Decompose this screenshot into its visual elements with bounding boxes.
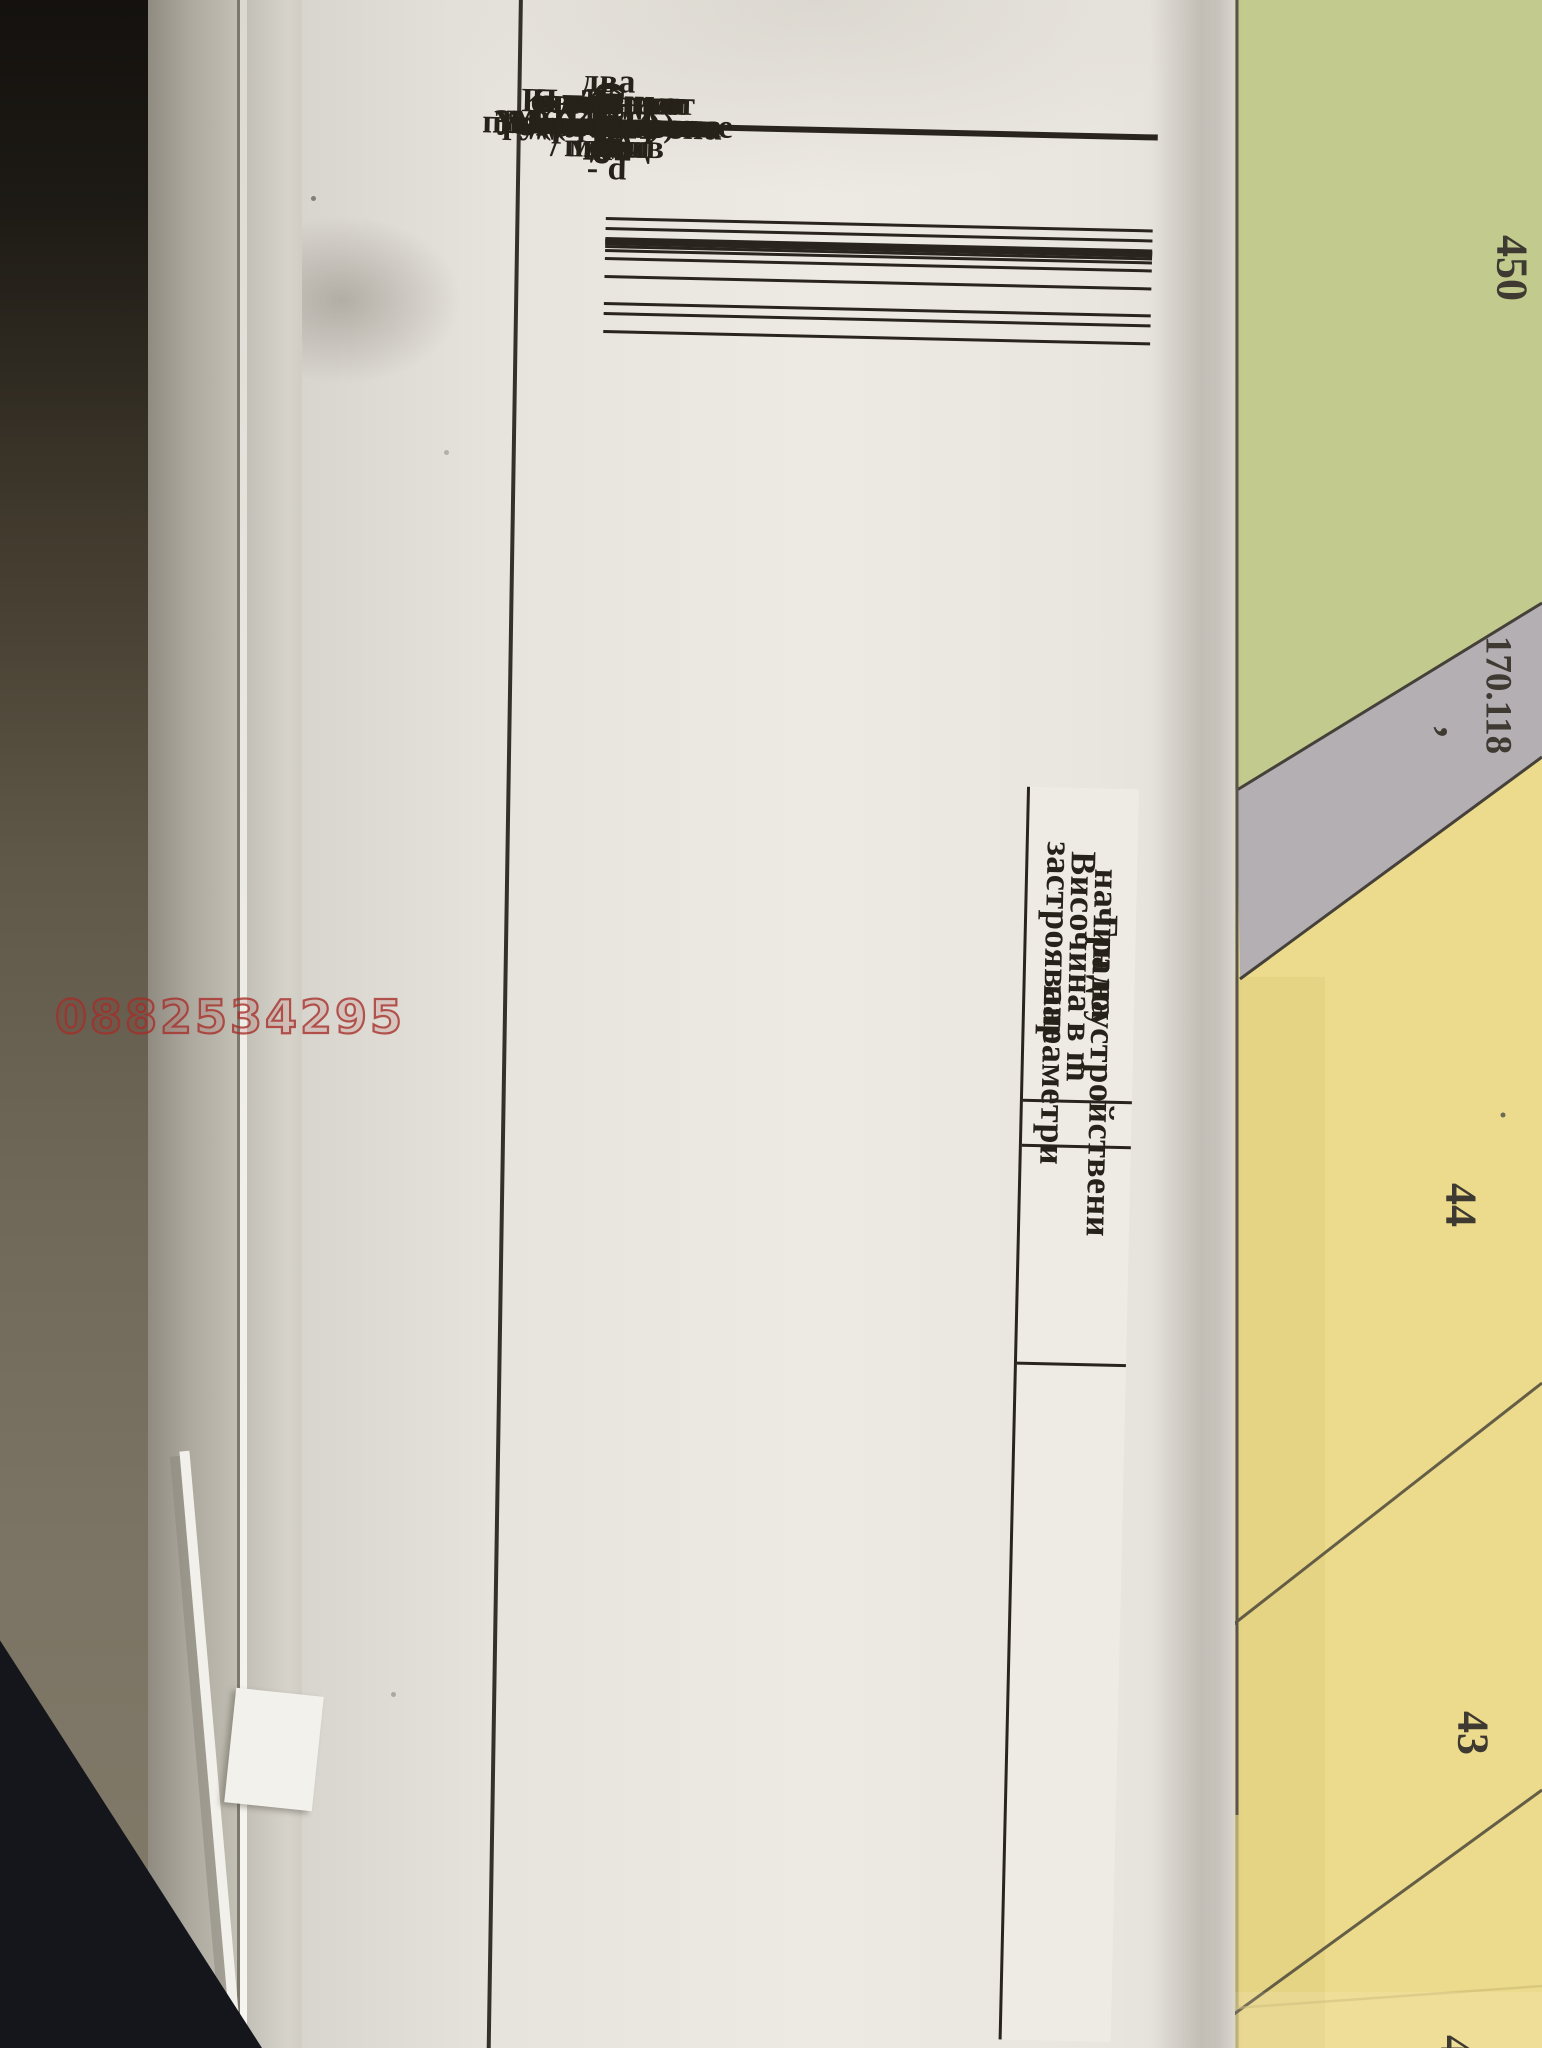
road-tick-mark: ,	[1430, 727, 1481, 738]
group-line: застрояване	[1036, 842, 1081, 1046]
zoning-map: 450 170.118 , 44 43 4	[1235, 0, 1542, 2048]
parcel-partial-label: 4	[1431, 2035, 1482, 2048]
photographed-document: 450 170.118 , 44 43 4 квартал / масив УП…	[0, 0, 1542, 2048]
parcel-44-label: 44	[1436, 1183, 1487, 1227]
paper-sheet-corner	[224, 1688, 324, 1812]
dust-speck	[311, 196, 316, 201]
building-mode-group-label: начин назастрояване	[1031, 841, 1131, 1046]
road-id-label: 170.118	[1477, 636, 1520, 754]
building-mode-group-cell: начин назастрояване	[1023, 787, 1139, 1104]
group-line: начин на	[1084, 869, 1127, 1021]
parcel-43-label: 43	[1448, 1711, 1499, 1755]
paper-fold-shading	[1150, 0, 1242, 2048]
phone-watermark: 0882534295	[55, 990, 405, 1044]
table-row-clipped	[605, 125, 1155, 255]
dust-speck	[444, 450, 449, 455]
parcel-450-label: 450	[1487, 235, 1538, 301]
dust-speck	[391, 1692, 396, 1697]
